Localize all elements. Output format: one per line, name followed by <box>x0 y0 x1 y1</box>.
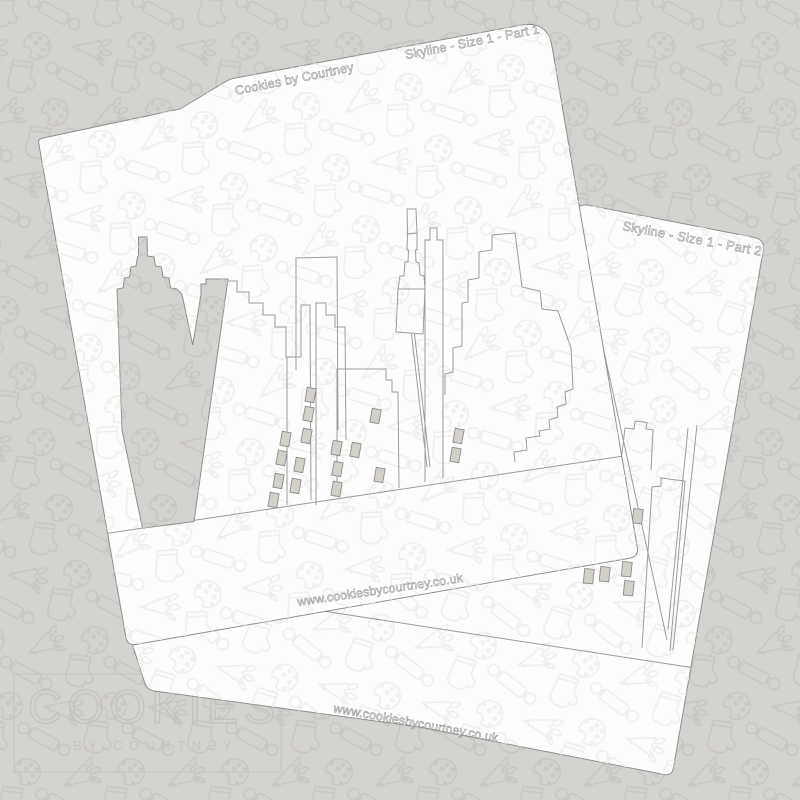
svg-text:BY COURTNEY: BY COURTNEY <box>73 738 238 753</box>
